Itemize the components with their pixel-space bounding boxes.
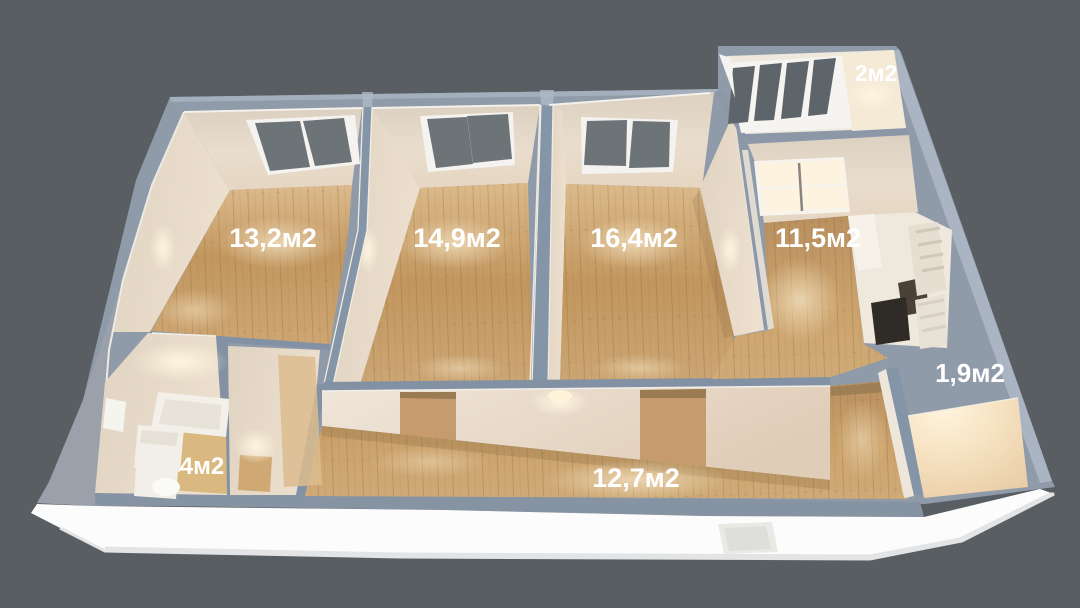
svg-text:13,2м2: 13,2м2 [229, 223, 317, 253]
svg-text:16,4м2: 16,4м2 [590, 223, 678, 253]
svg-text:14,9м2: 14,9м2 [413, 223, 501, 253]
svg-text:12,7м2: 12,7м2 [592, 463, 680, 493]
svg-text:2м2: 2м2 [855, 60, 898, 86]
svg-text:1,9м2: 1,9м2 [935, 358, 1005, 388]
svg-text:4м2: 4м2 [180, 453, 224, 480]
svg-text:11,5м2: 11,5м2 [775, 223, 861, 253]
